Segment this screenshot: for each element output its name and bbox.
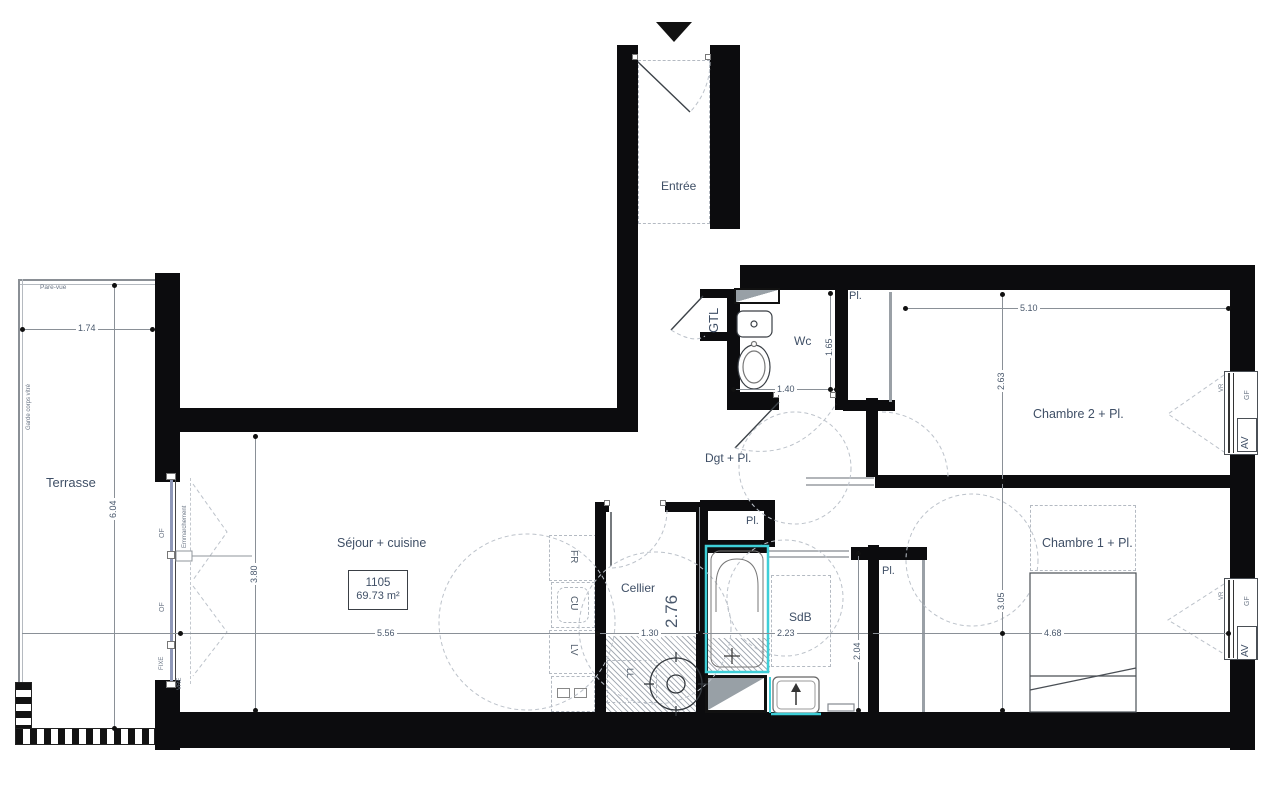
dim-terrasse-width: 1.74 [76, 323, 98, 334]
dim-node [112, 283, 117, 288]
dim-sdb-depth: 2.04 [852, 640, 863, 662]
bay-window-cap [166, 681, 176, 688]
dim-node [178, 631, 183, 636]
terrace-parapet-line [18, 279, 155, 281]
room-label-sdb: SdB [789, 611, 812, 623]
wall-entree-left [617, 45, 638, 432]
toilet-bowl-rim [743, 351, 765, 383]
wall-cellier-left [595, 505, 606, 712]
toilet-drain [752, 342, 757, 347]
wall-right-middle [1230, 453, 1255, 584]
bay-of-label: OF [159, 528, 166, 538]
dim-node [150, 327, 155, 332]
door-jamb [660, 500, 666, 506]
room-label-terrasse: Terrasse [46, 476, 96, 489]
sink [773, 677, 819, 713]
terrace-railing-line [18, 279, 20, 684]
kitchen-sink-bowl [557, 688, 570, 698]
terrace-railing-line [22, 279, 23, 684]
wall-bottom [155, 712, 1255, 748]
placard-label: Pl. [849, 291, 862, 302]
dim-node [1000, 708, 1005, 713]
bed-sheet-fold [1030, 668, 1136, 690]
wall-sejour-top [180, 408, 638, 432]
dim-node [868, 631, 873, 636]
bay-window-clearance-line [190, 478, 191, 684]
dim-node [856, 551, 861, 556]
washer-label: LL [625, 668, 634, 678]
entrance-arrow-icon [656, 22, 692, 42]
wall-nook-right [764, 500, 775, 547]
wall-dgt-chambre2 [875, 475, 1230, 488]
dishwasher-label: LV [568, 644, 578, 656]
dim-node [1226, 306, 1231, 311]
emmarchement-label: Emmarchement [182, 506, 188, 548]
wall-gtl-top [700, 289, 727, 298]
dim-line-chambres-depth [1002, 292, 1003, 712]
kitchen-sink-bowl [574, 688, 587, 698]
dim-node [112, 726, 117, 731]
dim-wc-width: 1.40 [775, 384, 797, 395]
dim-cellier-width: 1.30 [639, 628, 661, 639]
bay-window-handle [167, 551, 175, 559]
bathtub-backrest [716, 559, 758, 612]
room-label-cellier: Cellier [621, 582, 655, 594]
bathtub-foot-hatch [708, 638, 770, 672]
duct-shaft [734, 288, 780, 304]
bay-window-frame [175, 478, 176, 684]
sink-basin [777, 681, 815, 709]
dim-sejour-width: 5.56 [375, 628, 397, 639]
bay-fixe-label: FIXE [159, 657, 165, 670]
dim-node [828, 291, 833, 296]
duct-shaft [705, 675, 767, 713]
wall-right-upper [1230, 265, 1255, 375]
lot-number: 1105 [366, 578, 391, 590]
cooktop-label: CU [568, 596, 578, 610]
door-jamb [604, 500, 610, 506]
gtl-door-panel [671, 296, 703, 330]
room-label-chambre1: Chambre 1 + Pl. [1042, 537, 1133, 550]
fridge-label: FR [568, 550, 578, 563]
dim-terrasse-depth: 6.04 [108, 498, 119, 520]
chambre2-door-swing [882, 412, 948, 477]
sdb-door-sill [828, 704, 854, 711]
dim-node [1226, 631, 1231, 636]
wall-wc-bottom [727, 392, 779, 410]
bay-window-swing [193, 484, 227, 580]
wall-entree-right [710, 45, 740, 229]
door-jamb [632, 54, 638, 60]
dim-node [1000, 631, 1005, 636]
dim-line-sdb-depth [858, 551, 859, 712]
dim-node [595, 631, 600, 636]
terrace-edge-hatch [15, 728, 155, 745]
dim-node [1000, 479, 1005, 484]
dim-sdb-width: 2.23 [775, 628, 797, 639]
dim-line-cellier-depth [699, 507, 700, 633]
bed [1030, 573, 1136, 712]
dim-sejour-depth: 3.80 [249, 563, 260, 585]
chambre1-window-swing [1168, 584, 1224, 654]
entree-zone [638, 60, 710, 224]
wall-sdb-top-left [700, 540, 768, 553]
wall-dgt-chambre2-vert [866, 398, 878, 477]
dim-cellier-depth: 2.76 [662, 593, 681, 630]
door-jamb [705, 54, 711, 60]
placard-label: Pl. [746, 516, 759, 527]
dim-node [856, 708, 861, 713]
bay-window-cap [166, 473, 176, 480]
dim-wc-depth: 1.65 [824, 336, 835, 358]
chambre2-window-glazing [1228, 373, 1234, 453]
window-av-label: AV [1241, 644, 1251, 657]
dim-node [731, 387, 736, 392]
window-gf-label: GF [1244, 390, 1251, 400]
dim-node [253, 434, 258, 439]
chambre2-window-swing [1168, 375, 1224, 452]
bay-vre-label: VRE [177, 678, 183, 690]
bay-of-label: OF [159, 602, 166, 612]
window-gf-label: GF [1244, 596, 1251, 606]
wall-top-right [740, 265, 1255, 290]
room-label-chambre2: Chambre 2 + Pl. [1033, 408, 1124, 421]
room-label-gtl: GTL [707, 308, 720, 333]
wall-sdb-chambre1 [868, 545, 879, 712]
wall-gtl-bottom [700, 332, 727, 341]
wall-sdb-top-right [851, 547, 927, 560]
wc-door-swing [735, 404, 836, 451]
terrace-edge-hatch [15, 682, 32, 732]
lot-area: 69.73 m² [356, 591, 399, 602]
dim-node [698, 631, 703, 636]
floor-plan: Entrée Terrasse Séjour + cuisine Cellier… [0, 0, 1262, 800]
window-av-label: AV [1241, 436, 1251, 449]
washer-box [607, 660, 657, 703]
wall-west-lower [155, 680, 180, 750]
cellier-door-swing [611, 510, 667, 568]
dim-node [253, 708, 258, 713]
bay-window-handle [167, 641, 175, 649]
dim-line-chambre2-width [905, 308, 1230, 309]
bay-window-swing [193, 586, 227, 676]
dim-node [828, 387, 833, 392]
room-label-sejour: Séjour + cuisine [337, 537, 426, 550]
placard-wc-front [889, 292, 892, 402]
window-vr-label: VR [1219, 592, 1225, 600]
chambre1-clearance-circle [906, 494, 1038, 626]
dim-node [903, 306, 908, 311]
room-label-wc: Wc [794, 335, 811, 347]
room-label-dgt: Dgt + Pl. [705, 452, 751, 464]
bay-window-glazing [170, 478, 173, 684]
toilet-tank [737, 311, 772, 337]
dim-node [20, 327, 25, 332]
toilet-button [751, 321, 757, 327]
chambre1-window-glazing [1228, 580, 1234, 658]
room-label-entree: Entrée [661, 180, 696, 192]
terrace-parapet-line [18, 284, 155, 285]
placard-label: Pl. [882, 566, 895, 577]
window-vr-label: VR [1219, 384, 1225, 392]
garde-corps-label: Garde corps vitré [26, 384, 32, 430]
dim-node [834, 387, 839, 392]
pare-vue-label: Pare-vue [40, 285, 66, 292]
dim-node [1000, 292, 1005, 297]
toilet-bowl [738, 345, 770, 389]
dim-chambre1-width: 4.68 [1042, 628, 1064, 639]
lot-info-box: 1105 69.73 m² [348, 570, 408, 610]
dim-chambre2-depth: 2.63 [996, 370, 1007, 392]
wall-west-upper [155, 273, 180, 482]
door-jamb [830, 392, 836, 398]
dim-chambre2-width: 5.10 [1018, 303, 1040, 314]
sink-arrow-head [791, 683, 801, 692]
placard-chambre1-front [922, 560, 925, 712]
dim-chambre1-depth: 3.05 [996, 590, 1007, 612]
